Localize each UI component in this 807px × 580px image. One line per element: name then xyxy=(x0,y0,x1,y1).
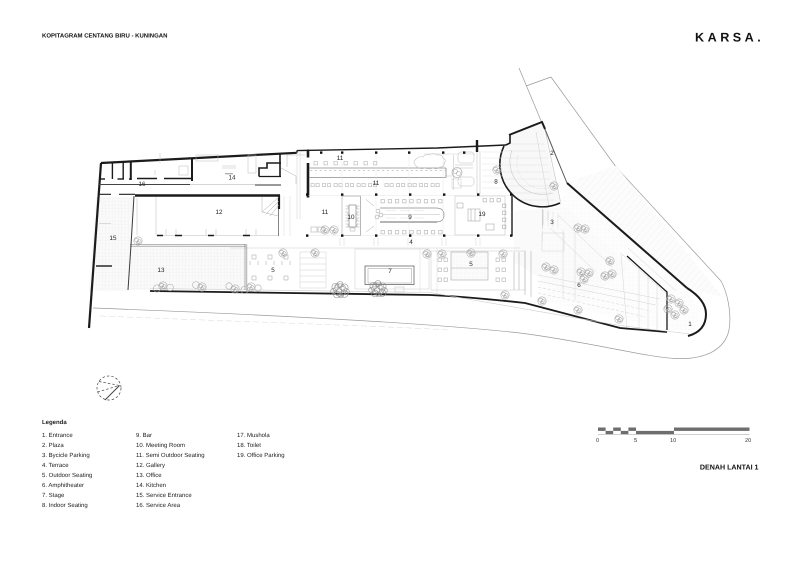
svg-text:16: 16 xyxy=(138,181,146,188)
svg-text:5. Outdoor Seating: 5. Outdoor Seating xyxy=(42,472,92,479)
svg-text:5: 5 xyxy=(271,267,275,274)
svg-text:12. Gallery: 12. Gallery xyxy=(136,462,165,469)
svg-text:2. Plaza: 2. Plaza xyxy=(42,442,64,449)
svg-text:1. Entrance: 1. Entrance xyxy=(42,432,73,439)
svg-text:14: 14 xyxy=(228,175,236,182)
svg-text:7. Stage: 7. Stage xyxy=(42,492,65,499)
svg-text:1: 1 xyxy=(688,321,692,328)
svg-text:11: 11 xyxy=(337,155,344,162)
svg-text:10: 10 xyxy=(670,438,676,444)
svg-text:DENAH LANTAI 1: DENAH LANTAI 1 xyxy=(700,464,759,472)
svg-text:5: 5 xyxy=(469,261,473,268)
svg-text:12: 12 xyxy=(215,209,223,216)
svg-text:14. Kitchen: 14. Kitchen xyxy=(136,482,166,489)
svg-text:4: 4 xyxy=(409,239,413,246)
svg-text:0: 0 xyxy=(596,438,599,444)
svg-text:2: 2 xyxy=(550,150,554,157)
svg-text:15: 15 xyxy=(109,235,117,242)
svg-text:9. Bar: 9. Bar xyxy=(136,432,152,439)
svg-text:8. Indoor Seating: 8. Indoor Seating xyxy=(42,502,88,509)
svg-text:13. Office: 13. Office xyxy=(136,472,162,479)
svg-text:KOPITAGRAM CENTANG BIRU - KUNI: KOPITAGRAM CENTANG BIRU - KUNINGAN xyxy=(42,33,167,40)
svg-text:16. Service Area: 16. Service Area xyxy=(136,502,181,509)
svg-text:KARSA.: KARSA. xyxy=(695,30,764,44)
svg-text:6: 6 xyxy=(577,282,581,289)
svg-text:18. Toilet: 18. Toilet xyxy=(237,442,261,449)
svg-text:5: 5 xyxy=(634,438,637,444)
svg-text:11: 11 xyxy=(373,180,380,187)
svg-text:19: 19 xyxy=(478,211,486,218)
svg-text:9: 9 xyxy=(408,214,412,221)
svg-text:11. Semi Outdoor Seating: 11. Semi Outdoor Seating xyxy=(136,452,205,459)
svg-text:17. Mushola: 17. Mushola xyxy=(237,432,270,439)
svg-text:3. Bycicle Parking: 3. Bycicle Parking xyxy=(42,452,90,459)
svg-text:7: 7 xyxy=(388,268,392,275)
svg-text:15. Service Entrance: 15. Service Entrance xyxy=(136,492,192,499)
svg-text:6. Amphitheater: 6. Amphitheater xyxy=(42,482,84,489)
svg-text:4. Terrace: 4. Terrace xyxy=(42,462,69,469)
svg-text:10: 10 xyxy=(347,214,355,221)
svg-text:19. Office Parking: 19. Office Parking xyxy=(237,452,285,459)
svg-text:8: 8 xyxy=(494,179,498,186)
svg-text:10. Meeting Room: 10. Meeting Room xyxy=(136,442,185,449)
svg-text:11: 11 xyxy=(322,209,329,216)
svg-text:13: 13 xyxy=(157,267,165,274)
svg-text:3: 3 xyxy=(550,219,554,226)
svg-text:Legenda: Legenda xyxy=(42,419,67,426)
svg-text:20: 20 xyxy=(745,438,751,444)
